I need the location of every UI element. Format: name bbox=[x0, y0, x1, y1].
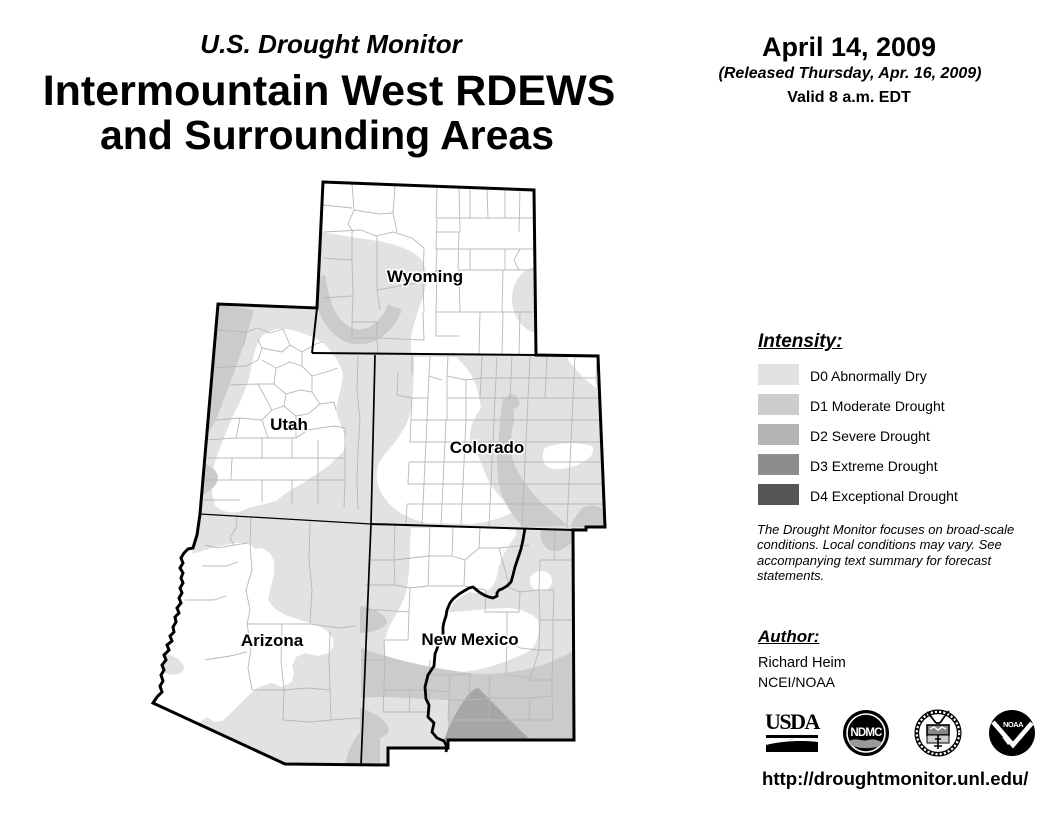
svg-text:Wyoming: Wyoming bbox=[387, 267, 463, 286]
svg-text:Utah: Utah bbox=[270, 415, 308, 434]
svg-text:New Mexico: New Mexico bbox=[421, 630, 518, 649]
svg-text:Colorado: Colorado bbox=[450, 438, 525, 457]
svg-text:Arizona: Arizona bbox=[241, 631, 304, 650]
